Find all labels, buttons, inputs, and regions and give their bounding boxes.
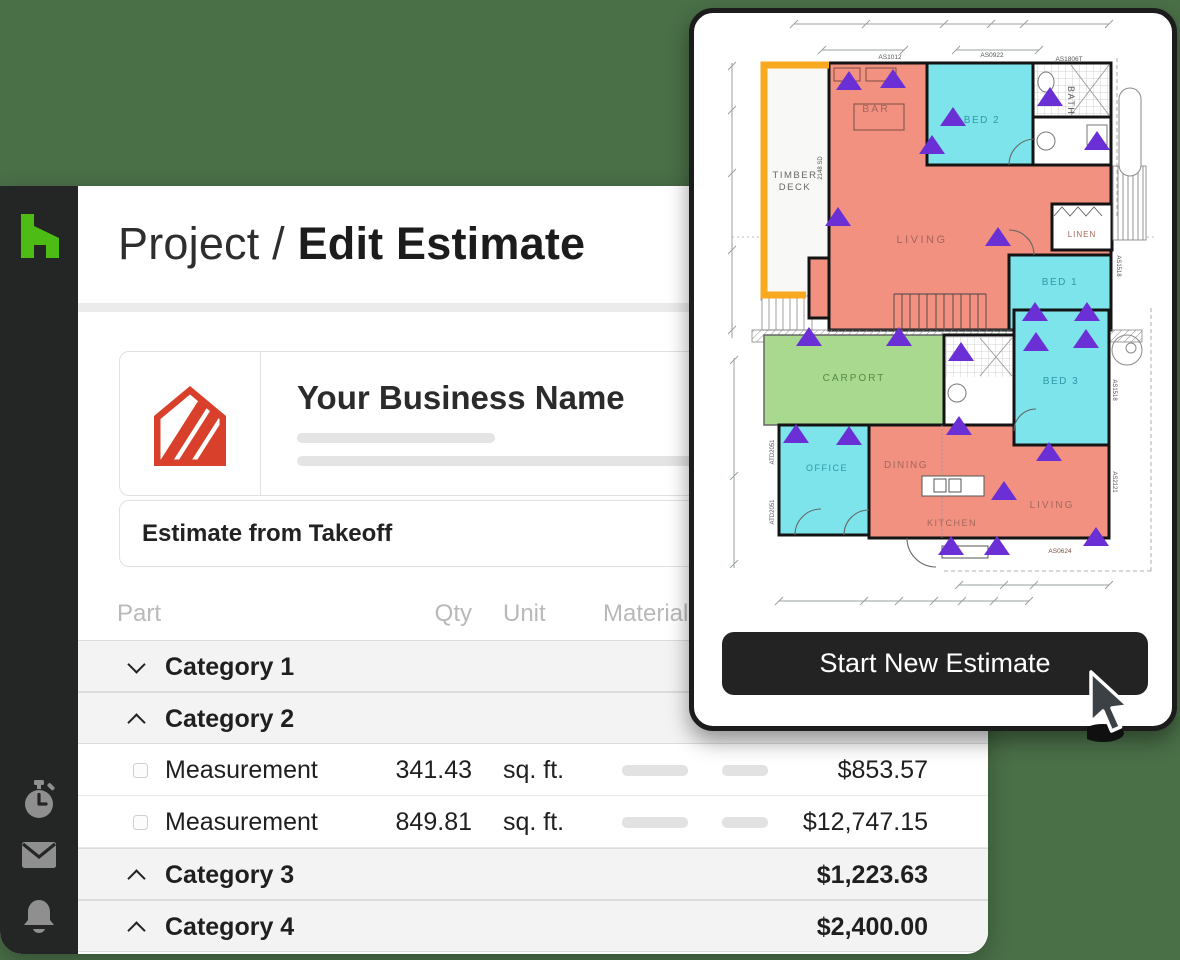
measurement-qty: 341.43 (330, 756, 472, 785)
svg-text:DECK: DECK (779, 182, 811, 193)
svg-text:AS2121: AS2121 (1111, 471, 1117, 493)
breadcrumb: Project / (118, 218, 285, 269)
wall-notch (809, 258, 829, 318)
measurement-total: $12,747.15 (638, 808, 928, 837)
bell-icon[interactable] (19, 898, 59, 943)
category-label: Category 3 (165, 861, 294, 890)
room-bed2 (927, 63, 1033, 165)
row-checkbox[interactable] (133, 815, 148, 830)
col-unit: Unit (503, 600, 546, 628)
takeoff-overlay-card: TIMBER DECK BAR BED 2 BATH LIVING LINEN … (689, 8, 1177, 731)
table-row-measurement-2[interactable]: Measurement 849.81 sq. ft. $12,747.15 (78, 796, 988, 848)
measurement-total: $853.57 (638, 756, 928, 785)
svg-text:2148 SD: 2148 SD (818, 156, 824, 180)
measurement-qty: 849.81 (330, 808, 472, 837)
svg-text:BED 1: BED 1 (1042, 277, 1078, 288)
estimate-section-title: Estimate from Takeoff (142, 520, 392, 548)
chevron-up-icon[interactable] (127, 921, 145, 939)
measurement-label: Measurement (165, 808, 318, 837)
measurement-unit: sq. ft. (503, 756, 564, 785)
svg-text:LINEN: LINEN (1068, 230, 1097, 239)
svg-text:AS0624: AS0624 (1048, 548, 1072, 555)
table-row-category-3[interactable]: Category 3 $1,223.63 (78, 848, 988, 900)
category-label: Category 4 (165, 913, 294, 942)
placeholder-line (297, 433, 495, 443)
svg-text:LIVING: LIVING (1030, 500, 1075, 511)
category-total: $1,223.63 (638, 861, 928, 890)
svg-text:AS1806T: AS1806T (1055, 56, 1082, 63)
mouse-cursor-icon (1087, 670, 1149, 751)
timer-icon[interactable] (19, 780, 59, 827)
svg-text:AS1012: AS1012 (878, 54, 902, 61)
svg-text:ATD2051: ATD2051 (770, 499, 776, 525)
exterior-stairs (1113, 166, 1146, 240)
col-material: Material (603, 600, 688, 628)
measurement-unit: sq. ft. (503, 808, 564, 837)
svg-text:LIVING: LIVING (896, 234, 947, 246)
start-new-estimate-button[interactable]: Start New Estimate (722, 632, 1148, 695)
chevron-up-icon[interactable] (127, 713, 145, 731)
row-checkbox[interactable] (133, 763, 148, 778)
placeholder-line (297, 456, 701, 466)
svg-text:BATH: BATH (1066, 86, 1076, 115)
table-row-measurement-1[interactable]: Measurement 341.43 sq. ft. $853.57 (78, 744, 988, 796)
business-logo-box (120, 352, 261, 495)
business-logo-icon (146, 380, 234, 468)
business-name: Your Business Name (297, 379, 625, 417)
table-row-category-4[interactable]: Category 4 $2,400.00 (78, 900, 988, 952)
floorplan-drawing: TIMBER DECK BAR BED 2 BATH LIVING LINEN … (694, 13, 1172, 625)
bath-tub (1119, 88, 1141, 176)
svg-text:CARPORT: CARPORT (823, 373, 886, 384)
col-qty: Qty (330, 600, 472, 628)
svg-text:AS0922: AS0922 (980, 52, 1004, 59)
chevron-up-icon[interactable] (127, 869, 145, 887)
deck-steps (762, 296, 812, 330)
category-total: $2,400.00 (638, 913, 928, 942)
houzz-logo[interactable] (21, 214, 59, 263)
svg-text:KITCHEN: KITCHEN (927, 518, 977, 528)
svg-text:BAR: BAR (862, 103, 890, 115)
svg-text:TIMBER: TIMBER (773, 170, 818, 181)
mail-icon[interactable] (19, 840, 59, 877)
page: { "background_color": "#4A7048", "sideba… (0, 0, 1180, 960)
svg-text:AS1518: AS1518 (1111, 379, 1117, 401)
sidebar (0, 186, 78, 954)
page-title: Project / Edit Estimate (118, 218, 585, 270)
chevron-down-icon[interactable] (127, 655, 145, 673)
svg-text:BED 3: BED 3 (1043, 376, 1079, 387)
svg-text:DINING: DINING (884, 460, 928, 471)
measurement-label: Measurement (165, 756, 318, 785)
svg-text:BED 2: BED 2 (964, 115, 1000, 126)
svg-text:AS1518: AS1518 (1115, 255, 1121, 277)
svg-text:OFFICE: OFFICE (806, 463, 848, 473)
svg-text:ATD2051: ATD2051 (770, 439, 776, 465)
page-title-current: Edit Estimate (298, 218, 586, 269)
category-label: Category 1 (165, 653, 294, 682)
category-label: Category 2 (165, 705, 294, 734)
col-part: Part (117, 600, 161, 628)
